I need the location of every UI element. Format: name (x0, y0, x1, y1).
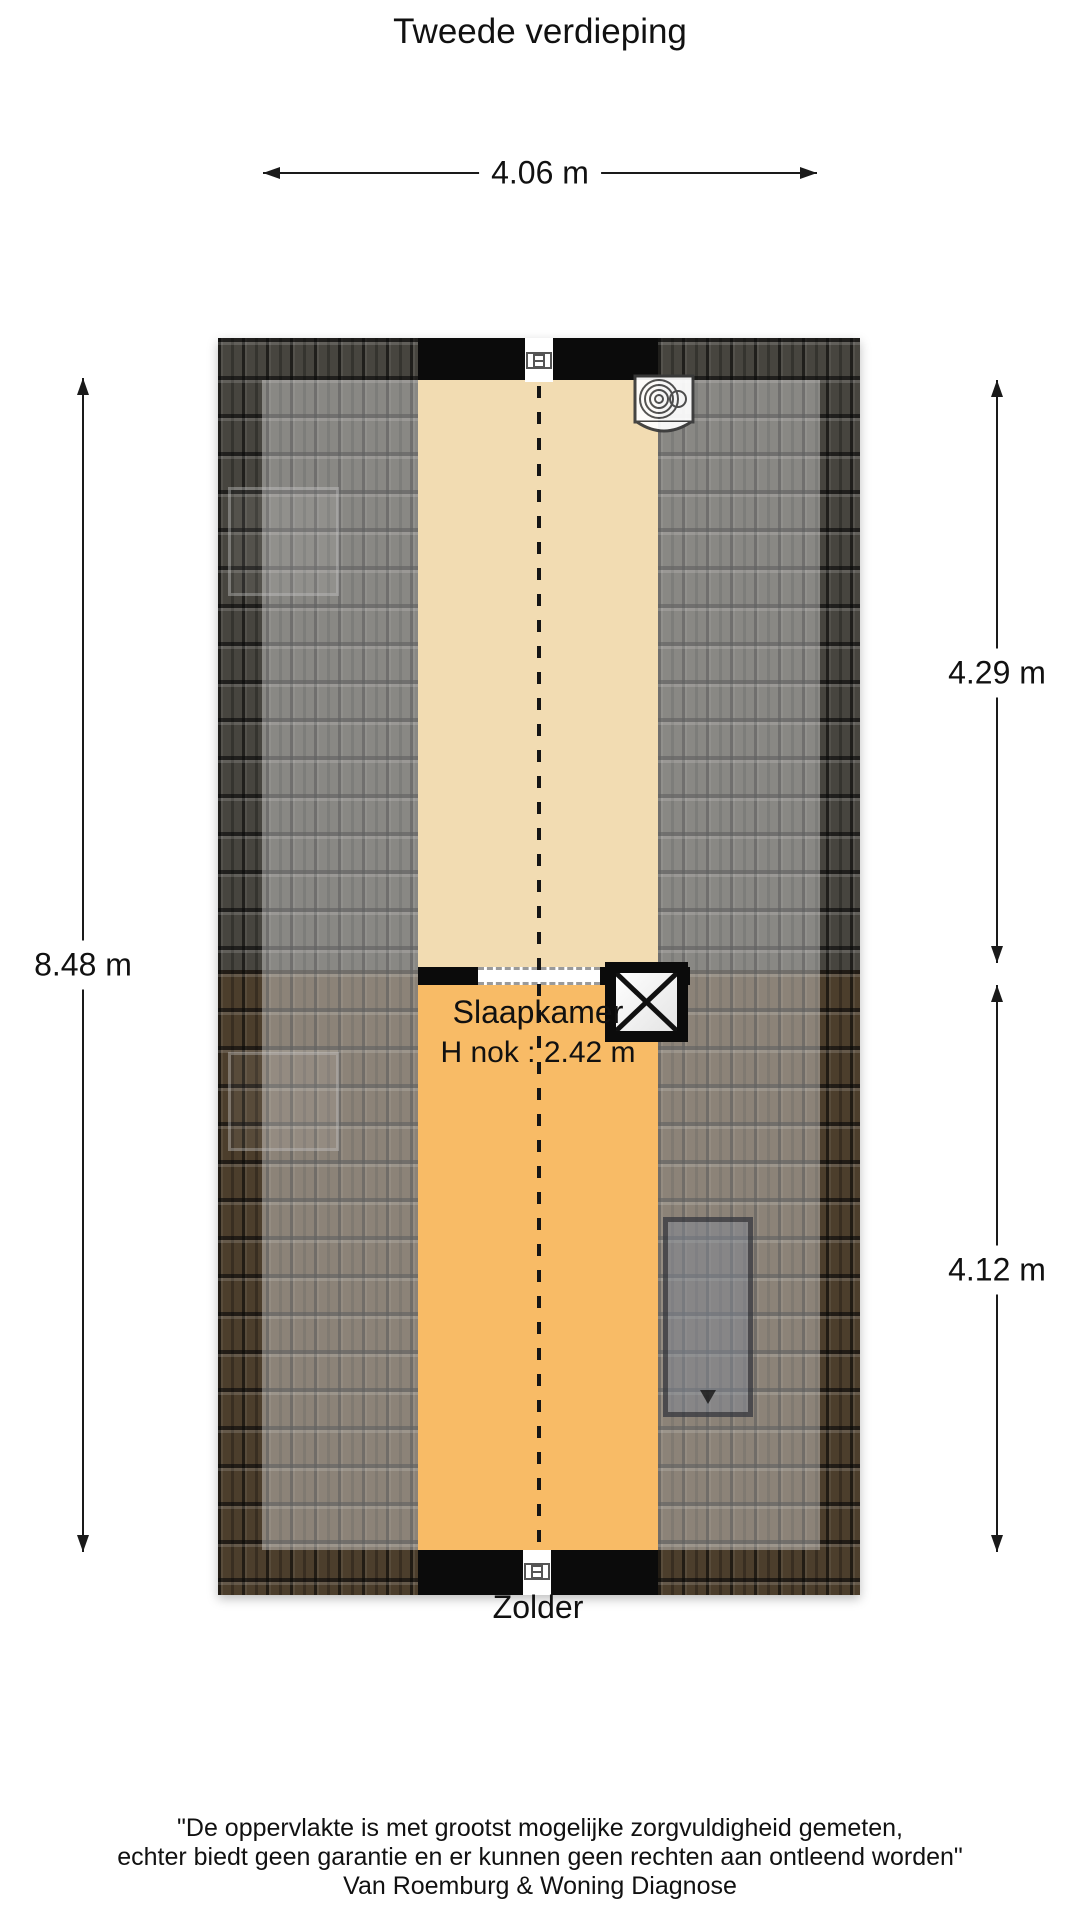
floorplan-page: Tweede verdieping 4.06 m 8.48 m 4.29 m 4… (0, 0, 1080, 1920)
arrowhead-right-icon (800, 167, 817, 179)
roof-window-icon (663, 1217, 753, 1417)
vent-icon (524, 1563, 550, 1580)
arrowhead-down-icon (991, 946, 1003, 963)
arrowhead-up-icon (991, 380, 1003, 397)
dimension-top: 4.06 m (263, 166, 817, 180)
dimension-label: 4.29 m (944, 649, 1050, 698)
arrowhead-left-icon (263, 167, 280, 179)
window-top (525, 338, 553, 382)
dimension-label: 4.06 m (479, 153, 601, 194)
arrowhead-up-icon (77, 378, 89, 395)
room-label-slaapkamer: Slaapkamer (418, 994, 658, 1031)
dimension-left: 8.48 m (76, 378, 90, 1552)
vent-icon (526, 352, 552, 369)
disclaimer: "De oppervlakte is met grootst mogelijke… (0, 1814, 1080, 1901)
floorplan: Slaapkamer H nok : 2.42 m Zolder (218, 338, 860, 1595)
disclaimer-line-1: "De oppervlakte is met grootst mogelijke… (0, 1814, 1080, 1843)
room-label-zolder: Zolder (418, 1589, 658, 1626)
vent-bars-icon (531, 1565, 543, 1578)
arrowhead-down-icon (991, 1535, 1003, 1552)
roof-panel-left (218, 338, 418, 1595)
roof-window-arrow-icon (700, 1390, 716, 1404)
room-ridge-height: H nok : 2.42 m (418, 1036, 658, 1070)
ridge-line (537, 386, 541, 1548)
washing-machine-icon (633, 374, 695, 438)
arrowhead-up-icon (991, 985, 1003, 1002)
arrowhead-down-icon (77, 1535, 89, 1552)
skylight-outline-icon (228, 1052, 339, 1151)
disclaimer-line-3: Van Roemburg & Woning Diagnose (0, 1872, 1080, 1901)
dimension-label: 8.48 m (30, 941, 136, 990)
dimension-label: 4.12 m (944, 1246, 1050, 1295)
skylight-outline-icon (228, 487, 339, 596)
dimension-right-lower: 4.12 m (990, 985, 1004, 1552)
dimension-right-upper: 4.29 m (990, 380, 1004, 963)
disclaimer-line-2: echter biedt geen garantie en er kunnen … (0, 1843, 1080, 1872)
vent-bars-icon (533, 354, 545, 367)
page-title: Tweede verdieping (0, 12, 1080, 52)
